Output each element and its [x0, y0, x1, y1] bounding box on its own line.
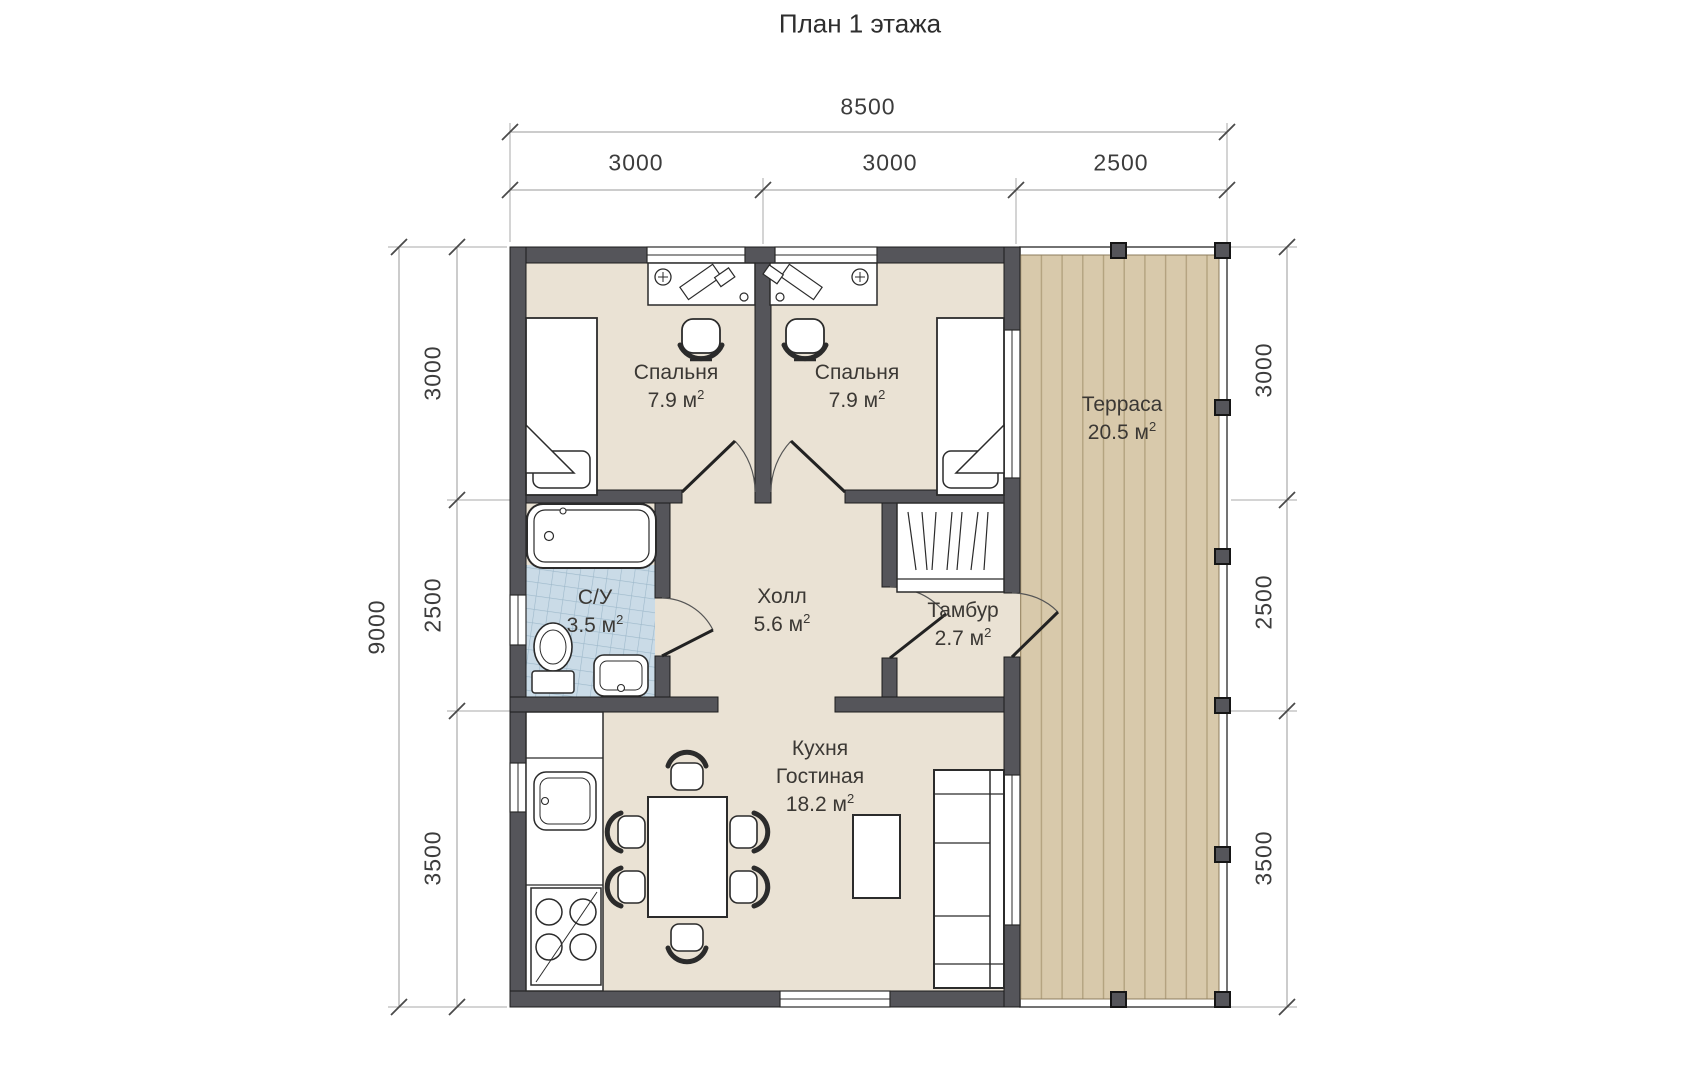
room-name: Тамбур: [927, 597, 998, 625]
dimension-lines-top: [502, 123, 1235, 244]
dim-right-segment-2: 2500: [1251, 574, 1278, 629]
window-living-right: [1004, 775, 1020, 925]
dim-left-segment-3: 3500: [420, 830, 447, 885]
room-label-kitchen: Кухня Гостиная 18.2 м2: [776, 735, 864, 819]
room-area: 7.9 м2: [815, 387, 899, 415]
dim-left-total: 9000: [364, 599, 391, 654]
dining-table-symbol: [648, 797, 727, 917]
room-name: Кухня: [776, 735, 864, 763]
room-label-bathroom: С/У 3.5 м2: [567, 584, 624, 640]
floor-plan-page: План 1 этажа 8500 3000 3000 2500 9000 30…: [0, 0, 1688, 1080]
room-label-hall: Холл 5.6 м2: [754, 583, 811, 639]
stove-symbol: [531, 888, 601, 985]
window-bedroom2-right: [1004, 330, 1020, 478]
sofa-symbol: [934, 770, 1004, 988]
room-name: Спальня: [815, 359, 899, 387]
dimension-lines-left: [388, 239, 522, 1015]
window-bathroom-left: [510, 595, 526, 645]
window-kitchen-left: [510, 763, 526, 812]
room-label-bedroom1: Спальня 7.9 м2: [634, 359, 718, 415]
room-area: 2.7 м2: [927, 625, 998, 653]
office-chair2-symbol: [784, 319, 826, 360]
window-kitchen-bottom: [780, 991, 890, 1007]
room-area: 20.5 м2: [1082, 419, 1163, 447]
window-bedroom2-top: [775, 247, 877, 263]
sink-symbol: [594, 655, 648, 696]
room-label-bedroom2: Спальня 7.9 м2: [815, 359, 899, 415]
room-area: 18.2 м2: [776, 791, 864, 819]
dim-left-segment-2: 2500: [420, 577, 447, 632]
page-title: План 1 этажа: [779, 9, 941, 40]
dim-top-segment-2: 3000: [862, 150, 917, 177]
dim-top-total: 8500: [840, 94, 895, 121]
room-name: Холл: [754, 583, 811, 611]
dim-top-segment-1: 3000: [608, 150, 663, 177]
room-label-tambur: Тамбур 2.7 м2: [927, 597, 998, 653]
room-area: 5.6 м2: [754, 611, 811, 639]
coffee-table-symbol: [853, 815, 900, 898]
room-area: 7.9 м2: [634, 387, 718, 415]
room-name: Спальня: [634, 359, 718, 387]
office-chair1-symbol: [680, 319, 722, 360]
kitchen-counter-symbol: [526, 712, 603, 991]
wardrobe-symbol: [897, 503, 1004, 592]
dim-right-segment-3: 3500: [1251, 830, 1278, 885]
window-bedroom1-top: [647, 247, 745, 263]
dim-right-segment-1: 3000: [1251, 342, 1278, 397]
room-label-terrace: Терраса 20.5 м2: [1082, 391, 1163, 447]
room-name: Гостиная: [776, 763, 864, 791]
terrace-decking: [1020, 255, 1219, 999]
dim-top-segment-3: 2500: [1093, 150, 1148, 177]
room-area: 3.5 м2: [567, 612, 624, 640]
room-terrace: [1020, 243, 1230, 1007]
dim-left-segment-1: 3000: [420, 345, 447, 400]
room-name: С/У: [567, 584, 624, 612]
floor-plan-canvas: [0, 0, 1688, 1080]
room-name: Терраса: [1082, 391, 1163, 419]
bathtub-symbol: [527, 504, 656, 568]
